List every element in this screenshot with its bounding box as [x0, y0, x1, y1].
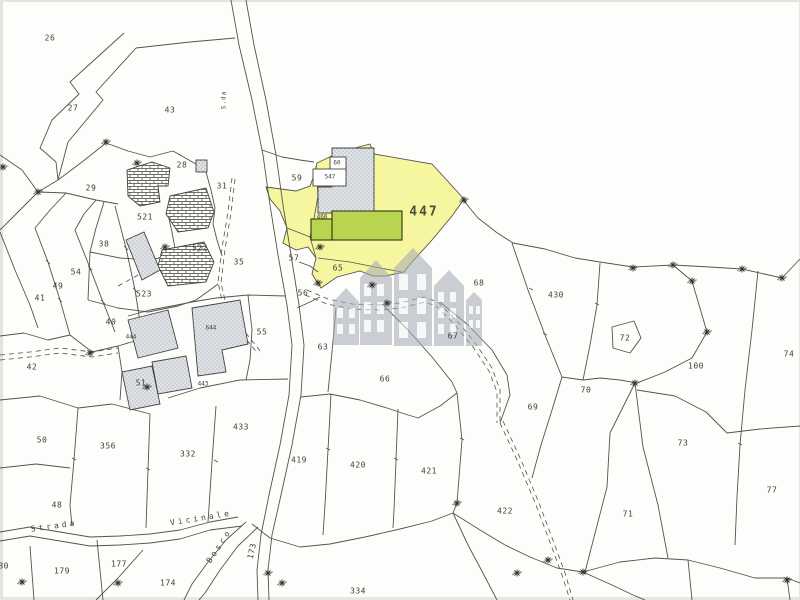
survey-cross-icon [543, 557, 552, 564]
building-gray-small [196, 160, 207, 172]
building-hatched [127, 162, 170, 206]
survey-cross-icon [628, 265, 637, 272]
building-gray [152, 356, 192, 394]
survey-cross-icon [578, 569, 587, 576]
survey-cross-icon [277, 580, 286, 587]
survey-cross-icon [512, 570, 521, 577]
cadastral-map: 2627432831295213852235544941523404244464… [0, 0, 800, 600]
building-gray [128, 310, 178, 358]
survey-cross-icon [777, 275, 786, 282]
survey-cross-icon [737, 266, 746, 273]
survey-cross-icon [452, 500, 461, 507]
building-annex-60 [330, 157, 346, 170]
building-annex-547 [313, 169, 346, 186]
survey-cross-icon [702, 329, 711, 336]
survey-cross-icon [263, 570, 272, 577]
road-diagonal [184, 522, 246, 600]
building-hatched [166, 188, 214, 232]
survey-cross-icon [630, 380, 639, 387]
survey-cross-icon [113, 580, 122, 587]
road-strada-vicinale [0, 517, 238, 537]
survey-cross-icon [85, 350, 94, 357]
map-canvas [0, 0, 800, 600]
survey-cross-icon [17, 579, 26, 586]
building-gray [192, 300, 248, 376]
roads [0, 0, 304, 600]
survey-cross-icon [0, 164, 8, 171]
